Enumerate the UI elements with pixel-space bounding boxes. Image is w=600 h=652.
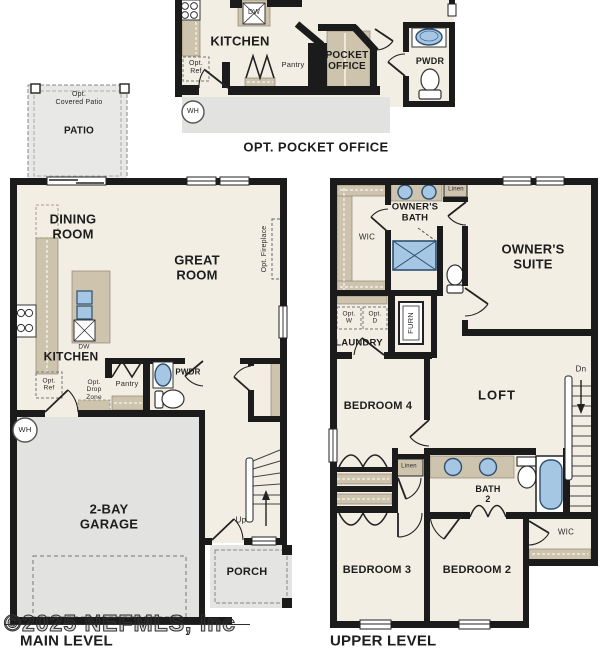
owner-wic-label: WIC: [359, 234, 375, 243]
opt-fireplace-label: Opt. Fireplace: [261, 226, 269, 273]
porch-post: [282, 545, 292, 555]
sink: [445, 459, 462, 476]
main-pantry-label: Pantry: [116, 380, 139, 388]
opt-w-label: Opt. W: [342, 311, 355, 326]
main-range: [14, 305, 36, 337]
upper-level-caption: UPPER LEVEL: [330, 634, 436, 651]
main-wh-label: WH: [19, 426, 32, 434]
island-sink: [77, 306, 92, 319]
window: [252, 537, 276, 545]
great-room-label: GREAT ROOM: [174, 253, 220, 282]
stair-railing: [246, 458, 253, 522]
sink: [398, 185, 412, 199]
floorplan-page: KITCHEN DW Opt. Ref Pantry POCKET OFFICE…: [0, 0, 600, 652]
opt-drop-zone-label: Opt. Drop Zone: [86, 379, 102, 401]
inset-wh-label: WH: [187, 108, 199, 116]
toilet: [447, 265, 463, 293]
watermark-strike: [4, 624, 250, 625]
porch-label: PORCH: [227, 566, 268, 578]
upper-cutout: [529, 566, 600, 628]
bath2-vanity: [430, 456, 514, 478]
bedroom3-label: BEDROOM 3: [343, 564, 411, 576]
window: [329, 429, 337, 462]
linen-top-label: Linen: [448, 187, 464, 194]
bedroom4-label: BEDROOM 4: [344, 400, 412, 412]
window: [279, 306, 287, 338]
main-pwdr-toilet: [155, 390, 184, 408]
main-pwdr-sink: [153, 362, 173, 388]
opt-covered-patio-label: Opt. Covered Patio: [56, 91, 103, 107]
inset-pocket-office-label: POCKET OFFICE: [326, 50, 369, 72]
main-dw-label: DW: [78, 343, 89, 350]
dining-room-label: DINING ROOM: [50, 212, 97, 241]
stair-railing: [565, 376, 572, 480]
coat-closet-shelf: [271, 362, 281, 418]
inset-garage-strip: [182, 97, 390, 133]
window: [459, 620, 490, 629]
linen-mid-label: Linen: [401, 464, 417, 471]
main-kitchen-label: KITCHEN: [44, 350, 99, 363]
island-sink: [77, 291, 92, 304]
bathtub: [536, 456, 566, 513]
window: [220, 177, 249, 185]
window: [187, 177, 216, 185]
main-pwdr-label: PWDR: [175, 369, 200, 378]
loft-label: LOFT: [478, 389, 516, 404]
window: [360, 620, 391, 629]
garage-label: 2-BAY GARAGE: [80, 502, 138, 531]
inset-pocket-office-plan: [175, 0, 456, 133]
porch-post: [282, 598, 292, 608]
inset-range: [179, 0, 200, 20]
inset-kitchen-label: KITCHEN: [210, 35, 269, 50]
inset-caption: OPT. POCKET OFFICE: [243, 141, 388, 156]
owners-suite-label: OWNER'S SUITE: [502, 242, 565, 271]
sink: [422, 185, 436, 199]
bath2-label: BATH 2: [475, 484, 500, 504]
inset-pantry-label: Pantry: [282, 61, 305, 69]
furn-label: FURN: [407, 312, 415, 334]
main-opt-ref-label: Opt. Ref: [42, 378, 55, 393]
patio-slider-door: [47, 177, 106, 185]
dn-label: Dn: [576, 366, 587, 375]
inset-pwdr-label: PWDR: [416, 56, 444, 66]
wic2-shelf: [529, 549, 591, 560]
inset-pwdr-sink: [412, 28, 446, 47]
bedroom2-label: BEDROOM 2: [443, 564, 511, 576]
patio-post: [31, 84, 40, 93]
patio-post: [120, 84, 129, 93]
wic2-label: WIC: [558, 529, 574, 538]
window: [536, 177, 564, 185]
inset-dw-label: DW: [248, 9, 260, 17]
laundry-label: LAUNDRY: [335, 339, 383, 350]
patio-label: PATIO: [64, 125, 94, 136]
owners-bath-label: OWNER'S BATH: [392, 202, 438, 223]
opt-d-label: Opt. D: [368, 311, 381, 326]
up-label: Up: [236, 517, 247, 526]
sink: [480, 459, 497, 476]
inset-window: [448, 4, 456, 16]
inset-opt-ref-label: Opt. Ref: [189, 60, 203, 76]
inset-pwdr-toilet: [419, 69, 441, 99]
window: [503, 177, 531, 185]
toilet: [517, 457, 537, 488]
